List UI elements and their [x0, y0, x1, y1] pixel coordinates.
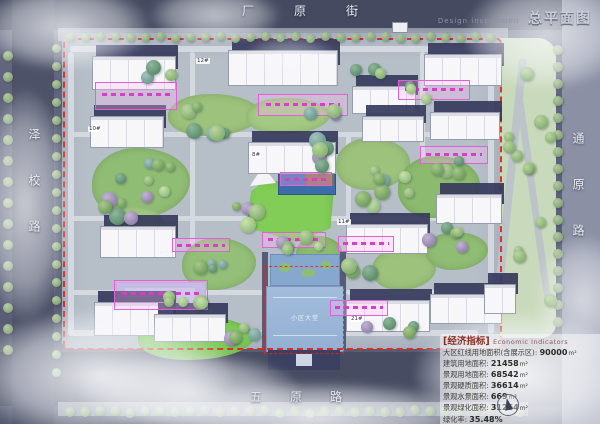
tree [98, 200, 112, 214]
indicator-row: 景观用地面积: 68542m² [443, 370, 599, 381]
tree [421, 94, 431, 104]
road-name-bottom: 五原路 [250, 388, 370, 405]
tree [165, 69, 177, 81]
building [436, 194, 502, 224]
building [362, 116, 424, 142]
sheet-title: Design inspiration|总平面图 [438, 8, 592, 28]
north-arrow-pointer [503, 397, 513, 410]
sheet-title-en: Design inspiration [438, 17, 519, 25]
road-name-top: 厂原街 [242, 2, 398, 19]
tree [229, 331, 242, 344]
tree [192, 102, 202, 112]
tree [239, 323, 249, 333]
tree [196, 297, 208, 309]
tree [399, 171, 411, 183]
indicators-title-en: Economic Indicators [493, 338, 568, 346]
gate-opening [296, 354, 312, 366]
tree [383, 317, 396, 330]
tree [52, 98, 61, 107]
road-name-left: 泽校路 [26, 128, 43, 266]
building-label: 21# [350, 316, 364, 322]
tree [375, 68, 386, 79]
indicators-title-cn: [经济指标] [443, 336, 490, 347]
tree [453, 227, 463, 237]
tree [304, 107, 317, 120]
tree [534, 115, 548, 129]
tree [452, 167, 465, 180]
annotation-box [95, 82, 177, 110]
road-name-right: 通原路 [570, 132, 587, 270]
tree [52, 296, 61, 305]
tree [441, 33, 450, 42]
tree [3, 72, 13, 82]
building-label: 8# [251, 152, 261, 158]
tree [503, 141, 515, 153]
tree [553, 147, 563, 157]
tree [351, 33, 360, 42]
building-label: 12# [196, 58, 210, 64]
indicator-row: 大区红线用地面积(含展示区): 90000m² [443, 348, 599, 359]
tree [431, 163, 444, 176]
tree [553, 96, 563, 106]
annotation-box [172, 238, 230, 252]
north-entrance-marker [392, 22, 408, 33]
annotation-box [338, 236, 394, 252]
tree [336, 33, 345, 42]
building [484, 284, 516, 314]
cloud-overlay [245, 36, 335, 78]
tree [553, 215, 563, 225]
tree [553, 113, 563, 123]
building [90, 116, 164, 148]
tree [381, 32, 390, 41]
tree [178, 297, 188, 307]
building-label: 10# [88, 126, 102, 132]
tree [141, 191, 153, 203]
tree [124, 211, 138, 225]
economic-indicators-panel: [经济指标] Economic Indicators 大区红线用地面积(含展示区… [440, 334, 600, 424]
north-arrow-icon [497, 394, 519, 416]
tree [406, 84, 416, 94]
tree [411, 34, 420, 43]
tree [553, 198, 563, 208]
tree [366, 32, 375, 41]
indicator-row: 景观绿化面积: 31264m² [443, 403, 599, 414]
tree [454, 156, 464, 166]
tree [404, 188, 414, 198]
building-label: 11# [337, 219, 351, 225]
indicator-row: 绿化率: 35.48% [443, 415, 599, 424]
tree [193, 260, 208, 275]
tree [321, 32, 330, 41]
tree [426, 32, 435, 41]
tree [456, 241, 468, 253]
tree [553, 164, 563, 174]
indicators-title: [经济指标] Economic Indicators [443, 336, 599, 348]
master-plan-canvas: 小区大堂 12# 10# 8# 11# 21# 厂原街 泽校路 通原路 五原路 … [0, 0, 600, 424]
tree [523, 164, 533, 174]
tree [456, 34, 465, 43]
tree [209, 125, 225, 141]
indicator-row: 景观水景面积: 669m² [443, 392, 599, 403]
tree [282, 244, 293, 255]
tree [312, 142, 328, 158]
tree [52, 80, 61, 89]
tree [164, 297, 174, 307]
tree [240, 217, 256, 233]
building [100, 226, 176, 258]
tree [361, 321, 373, 333]
tree [115, 173, 126, 184]
tree [553, 181, 563, 191]
tree [545, 132, 556, 143]
annotation-box [280, 172, 332, 186]
tree [355, 191, 371, 207]
sheet-title-cn: 总平面图 [528, 11, 592, 27]
building [430, 112, 500, 140]
tree [396, 34, 405, 43]
tree [156, 32, 165, 41]
tree [116, 198, 126, 208]
indicator-row: 景观硬质面积: 36614m² [443, 381, 599, 392]
sheet-title-separator: | [522, 13, 526, 26]
annotation-box [330, 300, 388, 316]
indicator-row: 建筑用地面积: 21458m² [443, 359, 599, 370]
tree [422, 233, 436, 247]
